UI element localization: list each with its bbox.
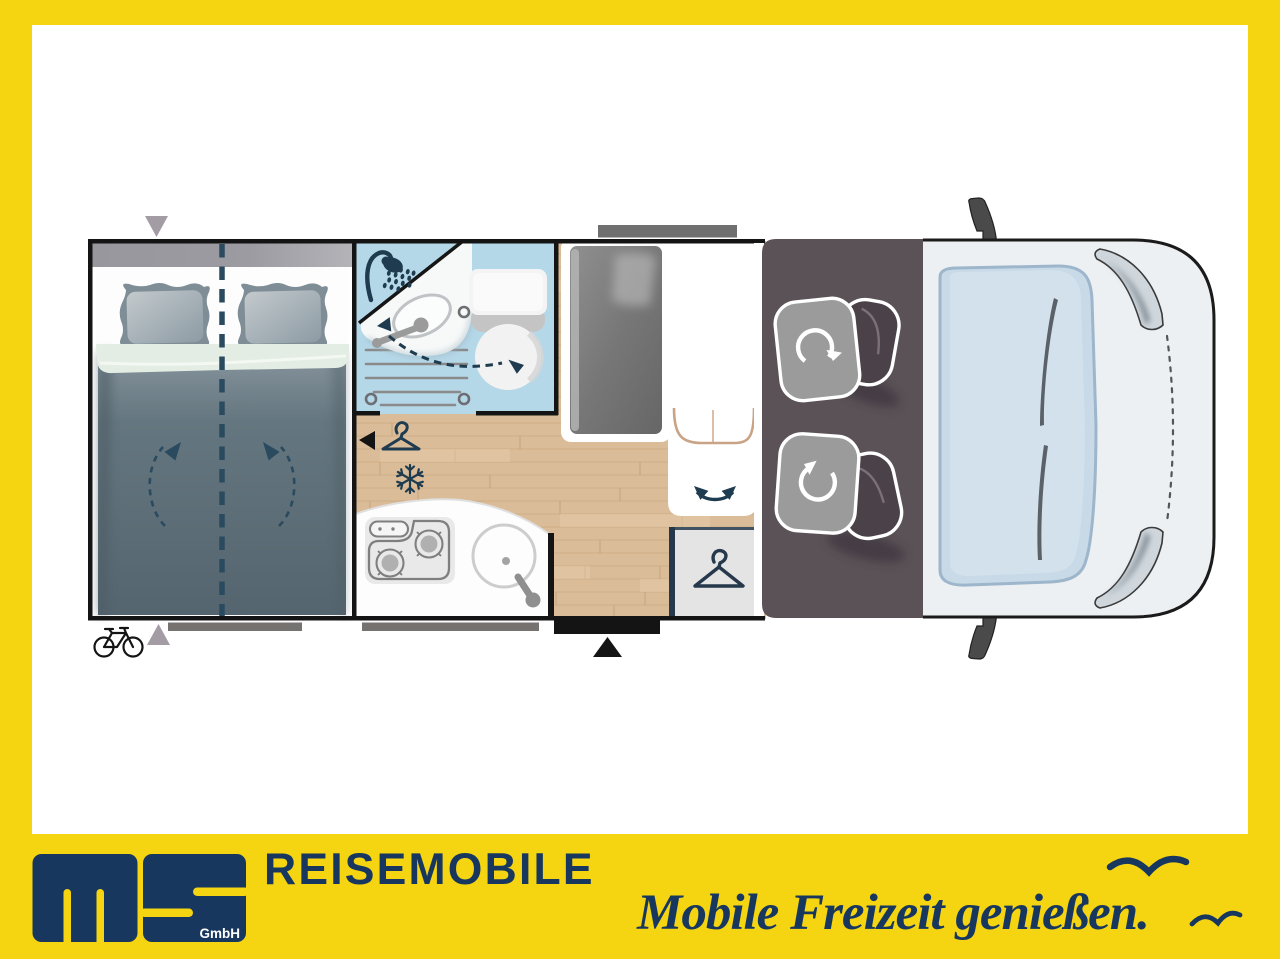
svg-text:GmbH: GmbH — [200, 926, 241, 941]
svg-text:Mobile Freizeit genießen.: Mobile Freizeit genießen. — [636, 885, 1149, 941]
svg-text:REISEMOBILE: REISEMOBILE — [264, 845, 595, 894]
